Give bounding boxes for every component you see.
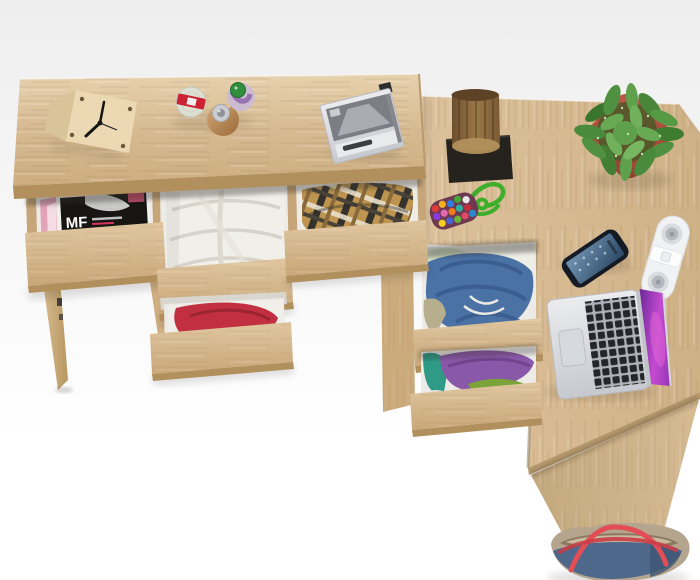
cube-clock [45, 90, 137, 160]
perfume-bottle-red-cap [176, 87, 206, 117]
product-photo-desk-scene: MF [0, 0, 700, 580]
laptop [546, 286, 674, 400]
laptop-trackpad [558, 328, 586, 367]
desk-scene-svg: MF [0, 0, 700, 580]
